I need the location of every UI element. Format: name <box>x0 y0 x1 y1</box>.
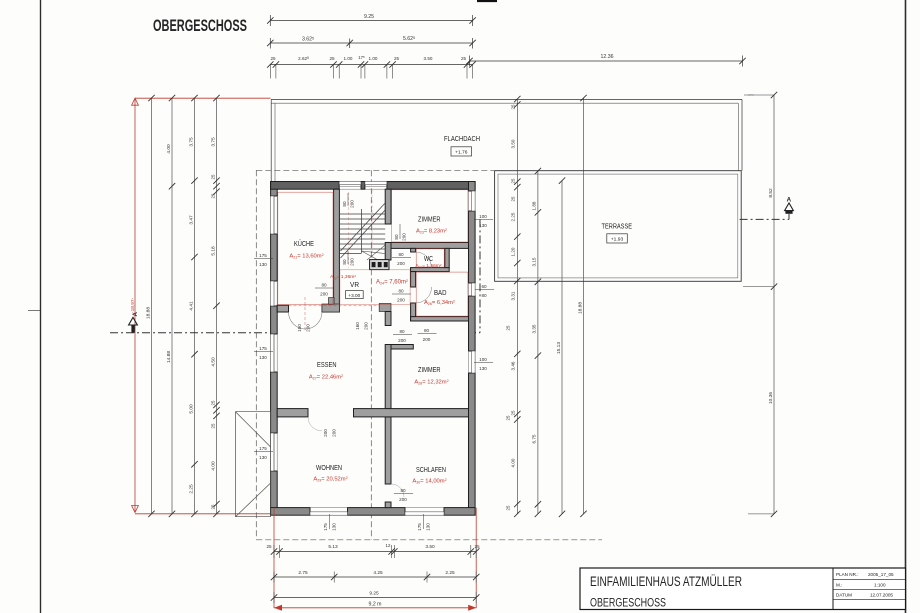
svg-text:BAD: BAD <box>434 288 447 297</box>
svg-text:3.50: 3.50 <box>424 56 433 61</box>
svg-text:1:100: 1:100 <box>874 583 886 588</box>
svg-text:1.88: 1.88 <box>532 201 537 210</box>
svg-text:130: 130 <box>259 455 267 460</box>
svg-text:25: 25 <box>511 104 516 109</box>
svg-text:160: 160 <box>355 322 360 330</box>
svg-text:3.47: 3.47 <box>189 215 195 225</box>
svg-text:150: 150 <box>297 324 302 332</box>
svg-text:2005_17_05: 2005_17_05 <box>868 572 894 577</box>
svg-text:100: 100 <box>479 357 487 362</box>
svg-text:-18,97-: -18,97- <box>130 297 136 313</box>
svg-text:M.:: M.: <box>836 583 842 588</box>
svg-text:80: 80 <box>481 293 487 298</box>
svg-text:25: 25 <box>474 544 480 549</box>
svg-text:130: 130 <box>479 366 487 371</box>
svg-text:OBERGESCHOSS: OBERGESCHOSS <box>153 17 247 35</box>
svg-text:KÜCHE: KÜCHE <box>294 239 314 248</box>
svg-text:DATUM: DATUM <box>836 593 852 598</box>
svg-text:8.52: 8.52 <box>768 188 774 198</box>
svg-text:25: 25 <box>394 56 400 61</box>
svg-text:ESSEN: ESSEN <box>317 360 337 369</box>
svg-text:FLACHDACH: FLACHDACH <box>444 134 480 143</box>
svg-text:+1.93: +1.93 <box>611 237 624 243</box>
svg-text:3.31: 3.31 <box>511 291 516 300</box>
svg-text:80: 80 <box>394 234 399 240</box>
svg-text:25: 25 <box>211 193 216 198</box>
svg-text:4.41: 4.41 <box>189 301 195 311</box>
svg-text:200: 200 <box>402 233 407 241</box>
svg-text:+1.76: +1.76 <box>455 150 468 156</box>
svg-text:130: 130 <box>332 523 337 531</box>
svg-text:18.88: 18.88 <box>578 302 584 314</box>
svg-text:200: 200 <box>306 324 311 332</box>
svg-text:ZIMMER: ZIMMER <box>418 365 441 374</box>
svg-text:80: 80 <box>342 201 347 207</box>
svg-text:25: 25 <box>211 174 216 179</box>
svg-text:4.50: 4.50 <box>211 357 217 367</box>
svg-text:200: 200 <box>332 429 337 437</box>
svg-text:80: 80 <box>424 328 430 333</box>
svg-text:12: 12 <box>386 543 391 548</box>
svg-text:4.25: 4.25 <box>373 570 383 576</box>
svg-text:80: 80 <box>342 259 347 265</box>
svg-text:25: 25 <box>511 178 516 183</box>
svg-text:10.36: 10.36 <box>768 392 774 404</box>
svg-text:175: 175 <box>259 253 267 258</box>
svg-text:25: 25 <box>461 56 467 61</box>
svg-text:WOHNEN: WOHNEN <box>316 463 342 472</box>
svg-text:80: 80 <box>321 283 327 288</box>
svg-text:25: 25 <box>211 400 216 405</box>
svg-text:9.25: 9.25 <box>364 14 374 20</box>
svg-text:9,2 m: 9,2 m <box>369 601 382 607</box>
svg-text:18.88: 18.88 <box>146 307 152 319</box>
svg-text:200: 200 <box>398 338 406 343</box>
svg-text:25: 25 <box>506 505 511 510</box>
svg-text:200: 200 <box>350 258 355 266</box>
svg-text:130: 130 <box>259 262 267 267</box>
svg-text:200: 200 <box>399 497 407 502</box>
svg-text:PLAN NR.:: PLAN NR.: <box>836 572 858 577</box>
svg-text:4.00: 4.00 <box>511 458 516 467</box>
svg-text:5.13: 5.13 <box>328 544 338 550</box>
svg-text:175: 175 <box>259 346 267 351</box>
svg-text:6.75: 6.75 <box>532 434 537 443</box>
svg-text:1.00: 1.00 <box>344 56 353 61</box>
svg-text:3.75: 3.75 <box>211 137 217 147</box>
svg-text:200: 200 <box>364 322 369 330</box>
svg-text:25: 25 <box>211 504 216 509</box>
svg-text:200: 200 <box>350 200 355 208</box>
svg-text:1.20: 1.20 <box>511 247 516 256</box>
svg-text:200: 200 <box>397 298 405 303</box>
svg-text:TERRASSE: TERRASSE <box>602 221 633 230</box>
svg-text:25: 25 <box>506 325 511 330</box>
svg-text:5.00: 5.00 <box>189 404 195 414</box>
svg-text:100: 100 <box>479 214 487 219</box>
svg-text:4.00: 4.00 <box>211 461 217 471</box>
svg-text:80: 80 <box>399 329 405 334</box>
svg-text:175: 175 <box>323 523 328 531</box>
svg-text:A: A <box>132 312 139 317</box>
svg-text:1.00: 1.00 <box>369 56 378 61</box>
svg-text:EINFAMILIENHAUS ATZMÜLLER: EINFAMILIENHAUS ATZMÜLLER <box>590 572 742 589</box>
svg-text:175: 175 <box>259 446 267 451</box>
svg-text:4.00: 4.00 <box>166 144 172 154</box>
svg-text:80: 80 <box>400 488 406 493</box>
svg-text:25: 25 <box>511 196 516 201</box>
svg-text:wm: wm <box>748 93 754 97</box>
svg-text:2.25: 2.25 <box>511 212 516 221</box>
svg-text:3.75: 3.75 <box>189 137 195 147</box>
svg-text:OBERGESCHOSS: OBERGESCHOSS <box>590 598 666 610</box>
svg-text:14.88: 14.88 <box>166 351 172 363</box>
svg-text:+3.00: +3.00 <box>348 293 360 298</box>
svg-text:25: 25 <box>270 56 276 61</box>
svg-text:2.25: 2.25 <box>445 570 455 576</box>
svg-text:3.35: 3.35 <box>532 324 537 333</box>
svg-text:15.13: 15.13 <box>556 342 562 354</box>
svg-text:25: 25 <box>266 544 272 549</box>
svg-text:25: 25 <box>506 415 511 420</box>
svg-text:12.07.2005: 12.07.2005 <box>870 593 893 598</box>
svg-text:SCHLAFEN: SCHLAFEN <box>416 465 446 474</box>
svg-text:200: 200 <box>320 292 328 297</box>
svg-text:25: 25 <box>511 410 516 415</box>
svg-text:175: 175 <box>417 523 422 531</box>
svg-text:2.25: 2.25 <box>189 484 195 494</box>
svg-text:130: 130 <box>426 523 431 531</box>
svg-text:WC: WC <box>424 254 433 263</box>
svg-text:5.18: 5.18 <box>211 246 217 256</box>
svg-text:3.15: 3.15 <box>532 257 537 266</box>
svg-text:VR: VR <box>350 280 359 289</box>
svg-text:60: 60 <box>481 284 487 289</box>
svg-text:2.75: 2.75 <box>298 570 308 576</box>
svg-text:130: 130 <box>259 355 267 360</box>
svg-text:3.50: 3.50 <box>425 544 435 550</box>
svg-text:130: 130 <box>479 223 487 228</box>
svg-text:9.25: 9.25 <box>369 591 379 597</box>
svg-text:ZIMMER: ZIMMER <box>418 214 441 223</box>
svg-text:200: 200 <box>423 337 431 342</box>
svg-text:25: 25 <box>211 423 216 428</box>
svg-text:3.50: 3.50 <box>511 139 516 148</box>
svg-text:200: 200 <box>397 261 405 266</box>
svg-text:80: 80 <box>398 252 404 257</box>
svg-text:200: 200 <box>323 429 328 437</box>
svg-text:3.46: 3.46 <box>511 361 516 370</box>
svg-text:12.36: 12.36 <box>601 54 614 60</box>
svg-text:25: 25 <box>329 56 335 61</box>
svg-text:80: 80 <box>398 289 404 294</box>
